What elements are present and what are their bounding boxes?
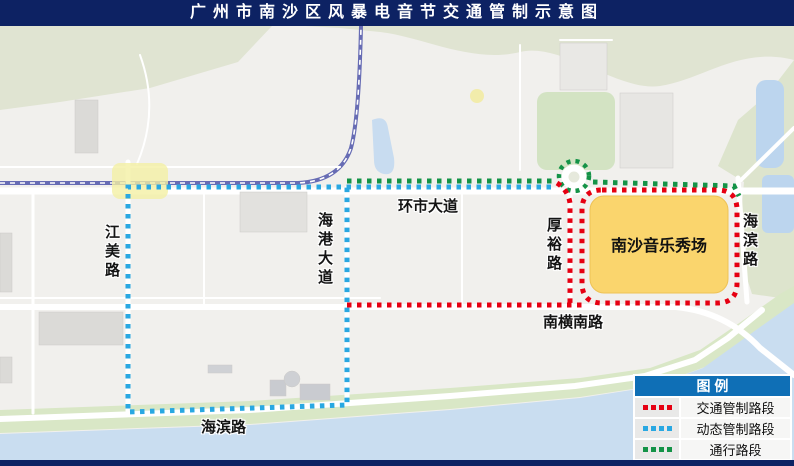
page-title: 广州市南沙区风暴电音节交通管制示意图: [0, 0, 794, 26]
road-label-nanheng: 南横南路: [543, 311, 603, 332]
road-label-huanshi: 环市大道: [398, 195, 458, 216]
interchange-highlight: [112, 163, 168, 199]
legend-header: 图 例: [635, 376, 790, 396]
pond-bay: [762, 175, 794, 233]
road-label-haigang: 海港大道: [314, 212, 335, 288]
legend-label-open-road: 通行路段: [681, 440, 790, 459]
legend: 图 例 交通管制路段 动态管制路段 通行路段: [633, 374, 792, 461]
road-label-haibin-right: 海滨路: [739, 213, 760, 270]
blue-dotted-swatch: [635, 419, 679, 438]
poi-marker: [470, 89, 484, 103]
legend-label-dynamic-control: 动态管制路段: [681, 419, 790, 438]
legend-label-traffic-control: 交通管制路段: [681, 398, 790, 417]
infographic: 广州市南沙区风暴电音节交通管制示意图: [0, 0, 794, 466]
pond-right: [756, 80, 784, 168]
venue-label: 南沙音乐秀场: [589, 232, 729, 256]
footer-bar: [0, 460, 794, 466]
legend-row-dynamic-control: 动态管制路段: [635, 419, 790, 438]
legend-row-traffic-control: 交通管制路段: [635, 398, 790, 417]
road-label-jiangmei: 江美路: [101, 224, 122, 281]
legend-row-open-road: 通行路段: [635, 440, 790, 459]
red-dotted-swatch: [635, 398, 679, 417]
road-label-houyu: 厚裕路: [543, 217, 564, 274]
road-label-haibin-bottom: 海滨路: [201, 416, 246, 437]
green-dotted-swatch: [635, 440, 679, 459]
